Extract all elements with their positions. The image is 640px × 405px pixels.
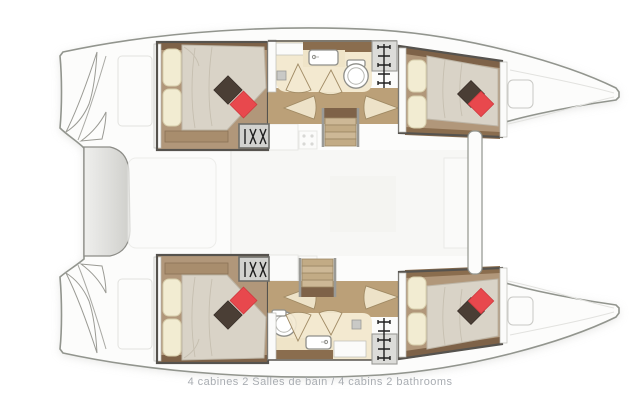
stairs-starboard	[300, 258, 335, 297]
washbasin-icon	[306, 336, 331, 349]
saloon-table-ghost	[330, 176, 396, 232]
shower-drain	[352, 320, 361, 329]
companionway-steps-icon	[239, 124, 269, 148]
partition-wall	[268, 313, 276, 360]
cabinet	[334, 341, 366, 357]
pillow	[408, 313, 426, 345]
pillow	[408, 96, 426, 128]
stairs-port	[323, 108, 358, 147]
bed-step	[165, 131, 228, 142]
cockpit-ghost	[128, 158, 216, 248]
cabinet	[276, 43, 305, 55]
washbasin-icon	[309, 50, 338, 65]
double-berth	[408, 56, 498, 128]
pillow	[163, 49, 181, 86]
cabin-door-wall	[399, 48, 406, 132]
plan-caption: 4 cabines 2 Salles de bain / 4 cabins 2 …	[0, 376, 640, 388]
stove-icon	[299, 131, 317, 149]
catamaran-layout-plan: 4 cabines 2 Salles de bain / 4 cabins 2 …	[0, 0, 640, 405]
pillow	[163, 319, 181, 356]
cabin-starboard-fore	[399, 266, 507, 359]
partition-wall	[268, 40, 276, 92]
pillow	[163, 279, 181, 316]
saloon-seat-ghost	[444, 158, 468, 248]
windshield-beam	[468, 131, 482, 274]
cabin-port-fore	[399, 46, 507, 139]
forepeak-wall	[500, 62, 507, 137]
bed-step	[165, 263, 228, 274]
floorplan-canvas	[0, 0, 640, 405]
toilet-icon	[344, 60, 368, 88]
pillow	[163, 89, 181, 126]
cabin-door-wall	[399, 273, 406, 357]
pillow	[408, 60, 426, 92]
forepeak-wall	[500, 268, 507, 343]
double-berth	[408, 277, 498, 349]
shower-drain	[277, 71, 286, 80]
counter	[268, 350, 333, 359]
companionway-steps-icon	[239, 257, 269, 281]
pillow	[408, 277, 426, 309]
